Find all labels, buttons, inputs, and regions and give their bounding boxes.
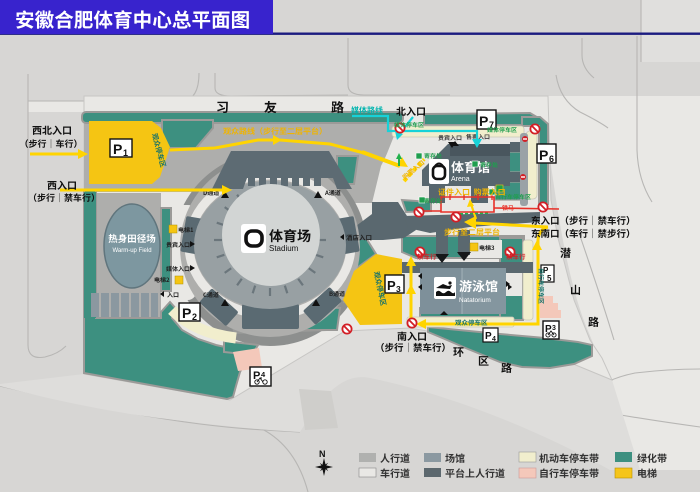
svg-text:P: P [485,331,492,342]
svg-text:3: 3 [396,284,401,294]
svg-text:5: 5 [547,274,552,283]
svg-text:Stadium: Stadium [269,244,299,253]
svg-text:P: P [479,113,488,129]
svg-text:Warm-up Field: Warm-up Field [112,248,151,254]
svg-text:Arena: Arena [451,176,470,183]
svg-text:N: N [319,449,326,459]
svg-text:1: 1 [123,148,128,158]
svg-text:P: P [113,141,122,157]
svg-text:4: 4 [492,336,496,343]
svg-text:6: 6 [549,154,554,164]
svg-text:P: P [539,147,548,163]
svg-text:2: 2 [192,312,197,322]
svg-text:3: 3 [552,325,556,332]
svg-text:P: P [182,305,191,321]
svg-text:Natatorium: Natatorium [459,297,491,304]
svg-text:P: P [387,278,396,293]
